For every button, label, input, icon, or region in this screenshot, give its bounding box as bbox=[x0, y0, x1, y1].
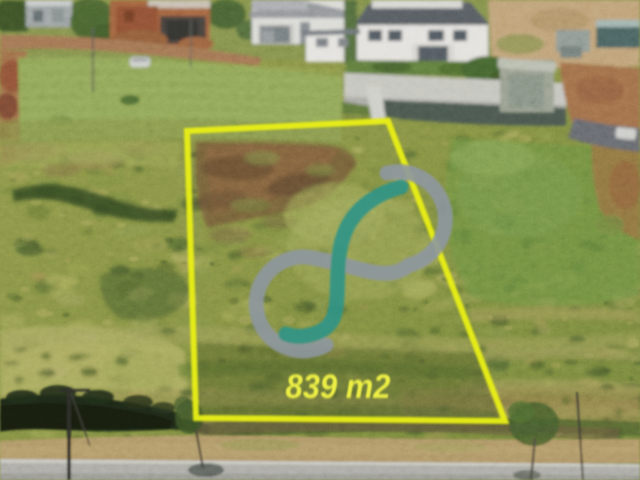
svg-text:839 m2: 839 m2 bbox=[286, 368, 391, 406]
